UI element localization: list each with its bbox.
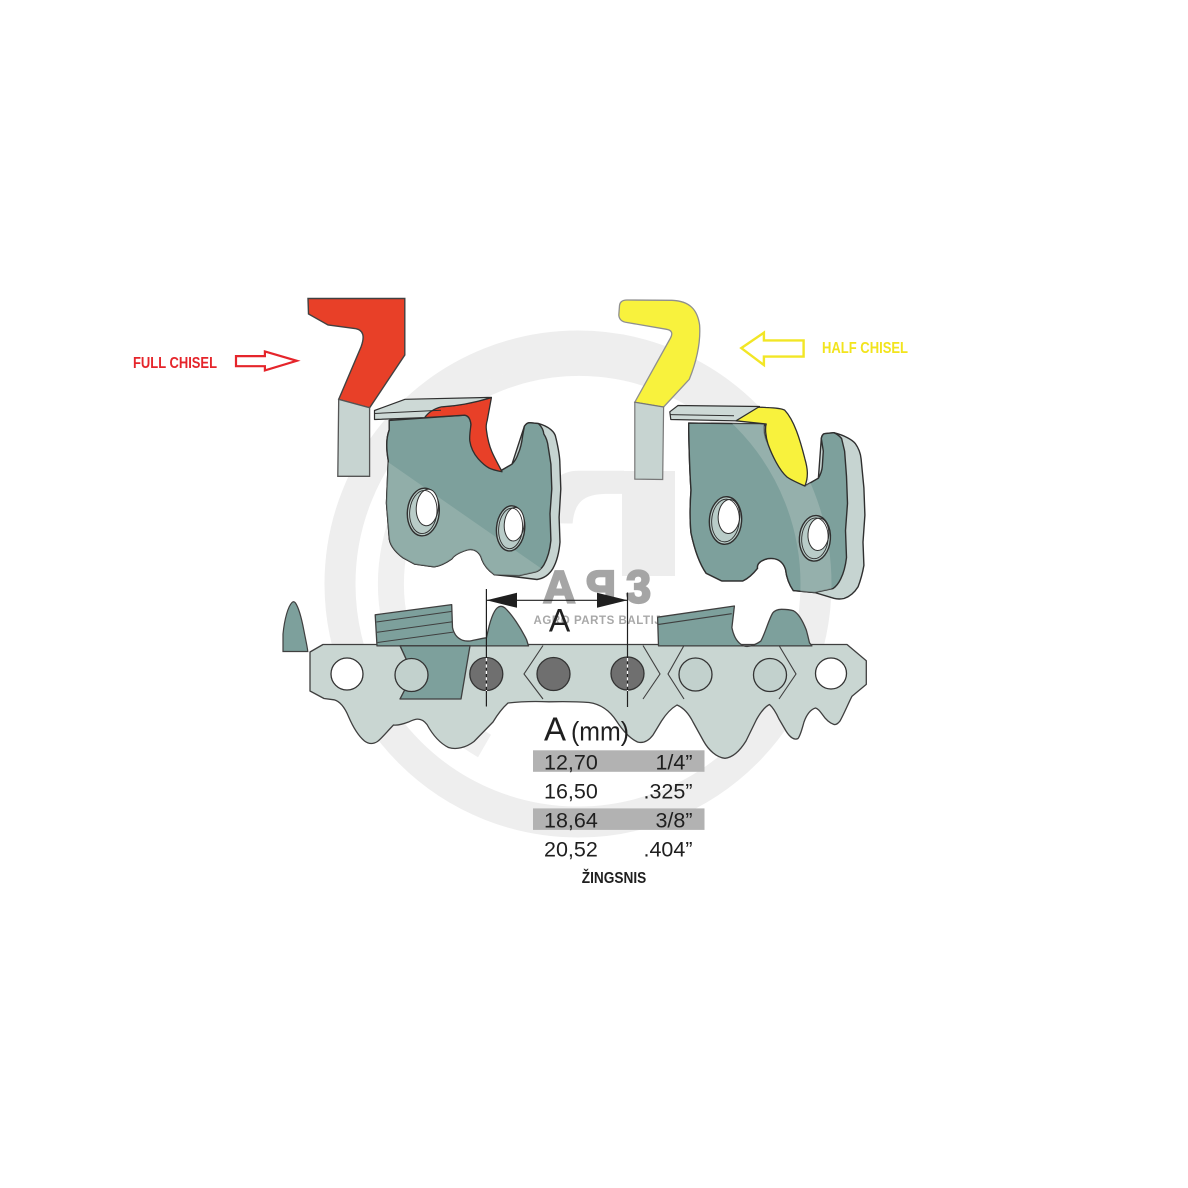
svg-text:A(mm): A(mm) [544, 710, 629, 747]
svg-text:3/8”: 3/8” [655, 809, 692, 833]
svg-text:3: 3 [626, 562, 651, 613]
svg-text:12,70: 12,70 [544, 750, 598, 774]
svg-text:HALF CHISEL: HALF CHISEL [822, 340, 908, 357]
svg-text:20,52: 20,52 [544, 838, 598, 862]
svg-text:FULL CHISEL: FULL CHISEL [133, 355, 217, 372]
svg-text:18,64: 18,64 [544, 809, 598, 833]
svg-text:.404”: .404” [643, 838, 692, 862]
svg-text:ŽINGSNIS: ŽINGSNIS [582, 869, 647, 887]
svg-text:.325”: .325” [643, 779, 692, 803]
svg-text:1/4”: 1/4” [655, 750, 692, 774]
svg-text:16,50: 16,50 [544, 779, 598, 803]
svg-text:A: A [549, 603, 571, 639]
